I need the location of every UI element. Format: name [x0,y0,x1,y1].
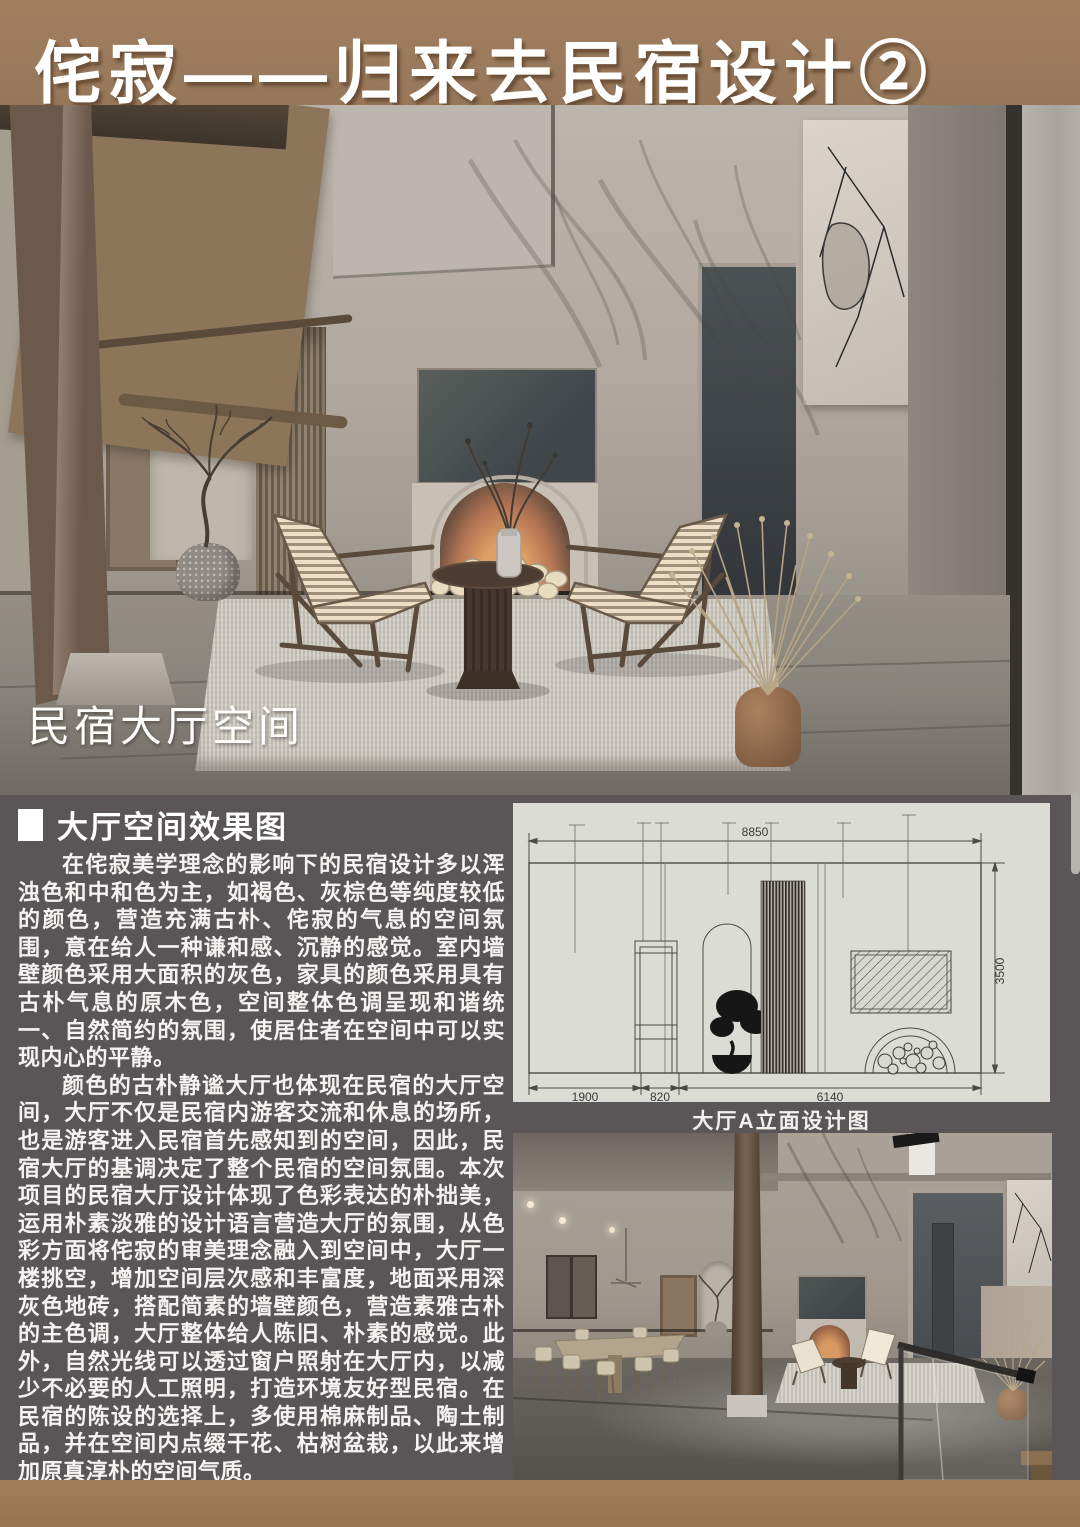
dried-tree [142,405,272,547]
r2-glass-railing [898,1345,1036,1480]
section-heading: 大厅空间效果图 [18,802,288,847]
r2-artwork-lines [1013,1193,1051,1273]
r2-overlay-art [513,1133,1052,1480]
hero-overlay-art [0,105,1080,795]
footer-band [0,1480,1080,1527]
r2-stone-pot [705,1321,727,1337]
article-body: 在侘寂美学理念的影响下的民宿设计多以浑浊色和中和色为主，如褐色、灰棕色等纯度较低… [18,851,505,1486]
header-band: 侘寂——归来去民宿设计② [0,0,1080,105]
elevation-caption: 大厅A立面设计图 [513,1105,1050,1135]
section-heading-text: 大厅空间效果图 [57,802,288,847]
coffee-table [433,562,543,689]
r2-lounge-group [791,1329,895,1389]
render-lobby-wide [513,1133,1052,1480]
branch-shadows [470,140,818,435]
poster-title: 侘寂——归来去民宿设计② [34,18,1044,117]
elevation-slat-screen [761,881,805,1073]
table-vase [465,422,558,577]
poster-page: 侘寂——归来去民宿设计② [0,0,1080,1527]
lounge-chair-left [274,515,432,670]
elevation-drawing: 8850 3500 1900 820 6140 [513,803,1050,1102]
scrollbar-thumb[interactable] [1071,792,1080,874]
r2-pendant-light [611,1228,641,1287]
hero-caption-overlay: 民宿大厅空间 [28,693,304,754]
r2-niche-tree [699,1273,735,1329]
heading-bullet-square [18,809,43,841]
chair-shadow-left [255,659,445,683]
dim-total-width: 8850 [742,825,769,839]
dim-mid: 820 [650,1090,670,1102]
r2-dining-set [535,1327,685,1399]
article-paragraph-1: 在侘寂美学理念的影响下的民宿设计多以浑浊色和中和色为主，如褐色、灰棕色等纯度较低… [18,851,505,1072]
article-paragraph-2: 颜色的古朴静谧大厅也体现在民宿的大厅空间，大厅不仅是民宿内游客交流和休息的场所，… [18,1072,505,1486]
lounge-chair-right [568,515,726,670]
dim-left: 1900 [572,1090,599,1102]
artwork-line-art [820,147,904,367]
elevation-hatched-panel [851,951,951,1013]
hero-render-lobby: 民宿大厅空间 [0,105,1080,795]
dim-right: 6140 [817,1090,844,1102]
dim-height: 3500 [993,957,1007,984]
elevation-cad: 8850 3500 1900 820 6140 [513,803,1050,1102]
